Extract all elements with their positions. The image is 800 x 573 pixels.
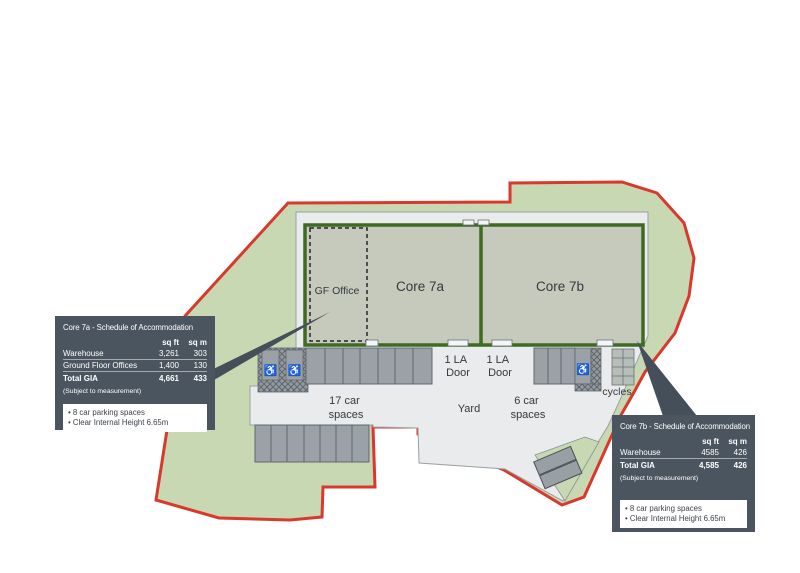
measurement-note: (Subject to measurement) <box>63 386 207 397</box>
core7b-panel-title: Core 7b - Schedule of Accommodation <box>620 421 747 432</box>
feature-bullet: • Clear Internal Height 6.65m <box>68 418 202 428</box>
row-label: Ground Floor Offices <box>63 360 143 371</box>
measurement-note: (Subject to measurement) <box>620 473 747 484</box>
row-sqm: 130 <box>179 360 207 371</box>
table-total-row: Total GIA 4,585 426 <box>620 460 747 471</box>
wheelchair-icon: ♿ <box>576 363 590 376</box>
row-label: Warehouse <box>620 447 683 458</box>
total-sqft: 4,661 <box>143 373 179 384</box>
total-sqft: 4,585 <box>683 460 719 471</box>
core7a-panel-title: Core 7a - Schedule of Accommodation <box>63 322 207 333</box>
la-door-b-label: 1 LA Door <box>486 354 512 379</box>
table-row: Ground Floor Offices 1,400 130 <box>63 360 207 372</box>
table-header: sq ft sq m <box>63 337 207 348</box>
gf-office-label: GF Office <box>315 285 360 297</box>
table-row: Warehouse 3,261 303 <box>63 348 207 360</box>
col-sqft: sq ft <box>143 337 179 348</box>
cycle-store <box>612 349 634 385</box>
wheelchair-icon: ♿ <box>264 364 278 377</box>
total-sqm: 433 <box>179 373 207 384</box>
features-box: • 8 car parking spaces • Clear Internal … <box>63 404 207 432</box>
la-door-a-label: 1 LA Door <box>444 354 470 379</box>
row-label: Warehouse <box>63 348 143 359</box>
col-sqm: sq m <box>719 436 747 447</box>
core7b-pointer <box>637 341 697 416</box>
feature-bullet: • 8 car parking spaces <box>68 408 202 418</box>
row-sqft: 3,261 <box>143 348 179 359</box>
col-sqft: sq ft <box>683 436 719 447</box>
row-sqft: 4585 <box>683 447 719 458</box>
table-total-row: Total GIA 4,661 433 <box>63 373 207 384</box>
parking-row-west <box>306 348 432 384</box>
features-box: • 8 car parking spaces • Clear Internal … <box>620 500 747 528</box>
table-row: Warehouse 4585 426 <box>620 447 747 459</box>
core7b-schedule-panel: Core 7b - Schedule of Accommodation sq f… <box>612 415 755 532</box>
core7a-label: Core 7a <box>396 279 445 294</box>
table-header: sq ft sq m <box>620 436 747 447</box>
total-label: Total GIA <box>620 460 683 471</box>
parking-row-east <box>534 348 575 384</box>
row-sqm: 426 <box>719 447 747 458</box>
feature-bullet: • 8 car parking spaces <box>625 504 742 514</box>
row-sqft: 1,400 <box>143 360 179 371</box>
core7b-label: Core 7b <box>536 279 584 294</box>
feature-bullet: • Clear Internal Height 6.65m <box>625 514 742 524</box>
core7a-schedule-panel: Core 7a - Schedule of Accommodation sq f… <box>55 316 215 430</box>
col-sqm: sq m <box>179 337 207 348</box>
parking-row-south <box>255 425 369 462</box>
cycles-label: cycles <box>602 386 631 398</box>
total-label: Total GIA <box>63 373 143 384</box>
yard-label: Yard <box>458 403 480 415</box>
wheelchair-icon: ♿ <box>288 364 302 377</box>
disabled-parking-hatch <box>575 384 601 391</box>
total-sqm: 426 <box>719 460 747 471</box>
row-sqm: 303 <box>179 348 207 359</box>
